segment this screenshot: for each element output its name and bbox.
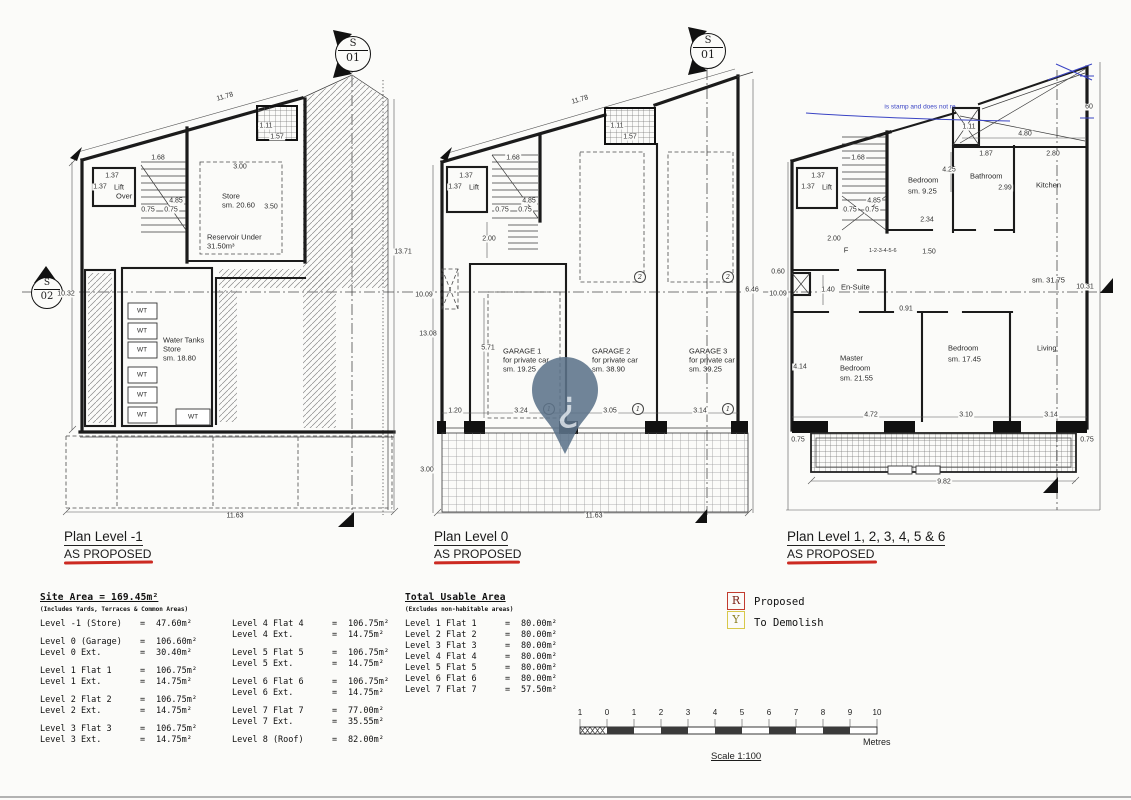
watermark-pin-icon: ¿	[527, 354, 603, 459]
scale-tick: 1	[578, 708, 582, 717]
plan1-subtitle: AS PROPOSED	[64, 547, 151, 561]
stamp-text: is stamp and does not re	[884, 104, 955, 111]
dim-label: 0.75	[864, 207, 880, 214]
dim-label: 3.10	[958, 412, 974, 419]
room-label: sm. 18.80	[163, 354, 196, 363]
scale-unit: Metres	[863, 737, 891, 747]
room-label: GARAGE 3	[689, 347, 727, 356]
dim-label: 4.14	[792, 364, 808, 371]
area-row: Level 5 Flat 5=80.00m²	[405, 663, 585, 674]
dim-label: 0.75	[842, 207, 858, 214]
legend-demolish-symbol: Y	[727, 611, 745, 629]
room-label: for private car	[689, 356, 735, 365]
area-row: Level 2 Ext.=14.75m²	[40, 706, 230, 717]
dim-label: 1.37	[458, 173, 474, 180]
scale-tick: 7	[794, 708, 798, 717]
dim-label: 4.72	[863, 412, 879, 419]
area-row: Level -1 (Store)=47.60m²	[40, 619, 230, 630]
area-row: Level 0 (Garage)=106.60m²	[40, 637, 230, 648]
dim-label: 1.68	[150, 155, 166, 162]
dim-label: 3.00	[419, 467, 435, 474]
dim-label: 2.00	[481, 236, 497, 243]
dim-label: 11.78	[215, 91, 235, 103]
dim-label: 1.37	[810, 173, 826, 180]
dim-label: 13.08	[418, 331, 438, 338]
dim-label: 2.00	[826, 236, 842, 243]
scale-tick: 4	[713, 708, 717, 717]
room-label: Bedroom	[908, 176, 938, 185]
room-label: Store	[163, 345, 181, 354]
dim-label: 3.50	[263, 204, 279, 211]
dim-label: 2.80	[1045, 151, 1061, 158]
dim-label: 0.91	[898, 306, 914, 313]
site-area-header: Site Area = 169.45m²	[40, 592, 230, 603]
usable-area-table: Total Usable Area (Excludes non-habitabl…	[405, 592, 585, 703]
usable-area-note: (Excludes non-habitable areas)	[405, 606, 585, 613]
area-row: Level 3 Ext.=14.75m²	[40, 735, 230, 746]
area-row: Level 6 Ext.=14.75m²	[232, 688, 412, 699]
area-row: Level 7 Flat 7=57.50m²	[405, 685, 585, 696]
room-label: sm. 39.25	[689, 365, 722, 374]
usable-area-header: Total Usable Area	[405, 592, 585, 603]
wt-label: WT	[137, 347, 147, 354]
dim-label: 1.68	[850, 155, 866, 162]
plan2-title: Plan Level 0	[434, 529, 508, 546]
dim-label: 0.75	[163, 207, 179, 214]
scale-tick: 10	[873, 708, 882, 717]
area-row: Level 2 Flat 2=106.75m²	[40, 695, 230, 706]
dim-label: 4.80	[1017, 131, 1033, 138]
area-row: Level 4 Flat 4=80.00m²	[405, 652, 585, 663]
area-row: Level 7 Flat 7=77.00m²	[232, 706, 412, 717]
area-row: Level 5 Ext.=14.75m²	[232, 659, 412, 670]
scale-tick: 5	[740, 708, 744, 717]
room-label: Master	[840, 354, 863, 363]
dim-label: 1.37	[92, 184, 108, 191]
dim-label: 1.37	[104, 173, 120, 180]
site-area-note: (Includes Yards, Terraces & Common Areas…	[40, 606, 230, 613]
dim-label: 60	[1084, 104, 1094, 111]
area-row: Level 1 Flat 1=106.75m²	[40, 666, 230, 677]
room-label: F	[844, 246, 849, 255]
site-area-table: Site Area = 169.45m² (Includes Yards, Te…	[40, 592, 230, 753]
dim-label: 1.40	[820, 287, 836, 294]
room-label: Over	[116, 192, 132, 201]
keynote-circle: 1	[722, 403, 734, 415]
usable-area-col: Level 1 Flat 1=80.00m²Level 2 Flat 2=80.…	[405, 619, 585, 696]
scale-tick: 0	[605, 708, 609, 717]
dim-label: 1.57	[622, 134, 638, 141]
dim-label: 2.99	[997, 185, 1013, 192]
scale-caption: Scale 1:100	[711, 751, 761, 762]
room-label: sm. 9.25	[908, 187, 937, 196]
area-row: Level 1 Ext.=14.75m²	[40, 677, 230, 688]
dim-label: 3.00	[232, 164, 248, 171]
wt-label: WT	[137, 392, 147, 399]
plan3-subtitle: AS PROPOSED	[787, 547, 874, 561]
dim-label: 11.63	[585, 513, 604, 520]
wt-label: WT	[137, 412, 147, 419]
dim-label: 6.46	[744, 287, 760, 294]
area-row: Level 6 Flat 6=80.00m²	[405, 674, 585, 685]
area-row: Level 5 Flat 5=106.75m²	[232, 648, 412, 659]
room-label: Living	[1037, 344, 1057, 353]
plan3-title: Plan Level 1, 2, 3, 4, 5 & 6	[787, 529, 945, 546]
pin-glyph: ¿	[557, 381, 579, 430]
area-row: Level 8 (Roof)=82.00m²	[232, 735, 412, 746]
dim-label: 3.14	[692, 408, 708, 415]
room-label: Bedroom	[948, 344, 978, 353]
dim-label: 13.71	[393, 249, 413, 256]
area-row: Level 3 Flat 3=80.00m²	[405, 641, 585, 652]
keynote-circle: 2	[722, 271, 734, 283]
legend-demolish-label: To Demolish	[754, 617, 824, 629]
dim-label: 0.75	[517, 207, 533, 214]
plan1-title: Plan Level -1	[64, 529, 143, 546]
room-label: Water Tanks	[163, 336, 204, 345]
area-row: Level 6 Flat 6=106.75m²	[232, 677, 412, 688]
dim-label: 3.14	[1043, 412, 1059, 419]
dim-label: 1-2-3-4-5-6	[869, 248, 897, 254]
scale-tick: 9	[848, 708, 852, 717]
scale-tick: 6	[767, 708, 771, 717]
dim-label: 0.75	[790, 437, 806, 444]
room-label: sm. 17.45	[948, 355, 981, 364]
wt-label: WT	[188, 414, 198, 421]
dim-label: 3.05	[602, 408, 618, 415]
site-area-col1: Level -1 (Store)=47.60m²Level 0 (Garage)…	[40, 619, 230, 746]
dim-label: 10.31	[1075, 284, 1095, 291]
dim-label: 0.75	[494, 207, 510, 214]
dim-label: 4.85	[521, 198, 537, 205]
room-label: En-Suite	[841, 283, 870, 292]
area-row: Level 3 Flat 3=106.75m²	[40, 724, 230, 735]
room-label: sm. 31.75	[1032, 276, 1065, 285]
dim-label: 11.63	[226, 513, 245, 520]
dim-label: 10.32	[56, 291, 76, 298]
room-label: Lift	[822, 183, 832, 192]
dim-label: 5.71	[480, 345, 496, 352]
area-row: Level 2 Flat 2=80.00m²	[405, 630, 585, 641]
scale-tick: 3	[686, 708, 690, 717]
site-area-col2: Level 4 Flat 4=106.75m²Level 4 Ext.=14.7…	[232, 619, 412, 746]
dim-label: 0.75	[1079, 437, 1095, 444]
room-label: 31.50m³	[207, 242, 235, 251]
dim-label: 9.82	[936, 479, 952, 486]
plan2-subtitle: AS PROPOSED	[434, 547, 521, 561]
dim-label: 4.85	[168, 198, 184, 205]
area-row: Level 7 Ext.=35.55m²	[232, 717, 412, 728]
legend-proposed-symbol: R	[727, 592, 745, 610]
keynote-circle: 2	[634, 271, 646, 283]
dim-label: 1.37	[800, 184, 816, 191]
dim-label: 10.09	[414, 292, 434, 299]
dim-label: 10.09	[768, 291, 788, 298]
dim-label: 1.11	[258, 123, 273, 130]
room-label: Bathroom	[970, 172, 1003, 181]
dim-label: 1.87	[978, 151, 994, 158]
dim-label: 0.75	[140, 207, 156, 214]
wt-label: WT	[137, 328, 147, 335]
scale-tick: 1	[632, 708, 636, 717]
dim-label: 1.11	[609, 123, 624, 130]
dim-label: 1.20	[447, 408, 463, 415]
dim-label: 2.34	[919, 217, 935, 224]
dim-label: 4.25	[941, 167, 957, 174]
wt-label: WT	[137, 308, 147, 315]
dim-label: 1.11	[961, 124, 976, 131]
room-label: sm. 20.60	[222, 201, 255, 210]
dim-label: 11.78	[570, 94, 590, 106]
dim-label: 1.57	[269, 134, 285, 141]
drawing-sheet: S 01 S 01 S 02 11.781.111.571.681.371.37…	[0, 0, 1131, 800]
room-label: Bedroom	[840, 364, 870, 373]
room-label: Store	[222, 192, 240, 201]
area-row: Level 4 Flat 4=106.75m²	[232, 619, 412, 630]
room-label: sm. 21.55	[840, 374, 873, 383]
site-area-table-col2: Level 4 Flat 4=106.75m²Level 4 Ext.=14.7…	[232, 619, 412, 753]
scale-tick: 8	[821, 708, 825, 717]
legend-proposed-label: Proposed	[754, 596, 805, 608]
scale-tick: 2	[659, 708, 663, 717]
wt-label: WT	[137, 372, 147, 379]
room-label: Reservoir Under	[207, 233, 262, 242]
dim-label: 4.85	[866, 198, 882, 205]
dim-label: 1.37	[447, 184, 463, 191]
area-row: Level 4 Ext.=14.75m²	[232, 630, 412, 641]
area-row: Level 1 Flat 1=80.00m²	[405, 619, 585, 630]
room-label: Lift	[114, 183, 124, 192]
room-label: Lift	[469, 183, 479, 192]
dim-label: 1.68	[505, 155, 521, 162]
dim-label: 0.60	[770, 269, 786, 276]
keynote-circle: 1	[632, 403, 644, 415]
area-row: Level 0 Ext.=30.40m²	[40, 648, 230, 659]
dim-label: 1.50	[921, 249, 937, 256]
room-label: Kitchen	[1036, 181, 1061, 190]
